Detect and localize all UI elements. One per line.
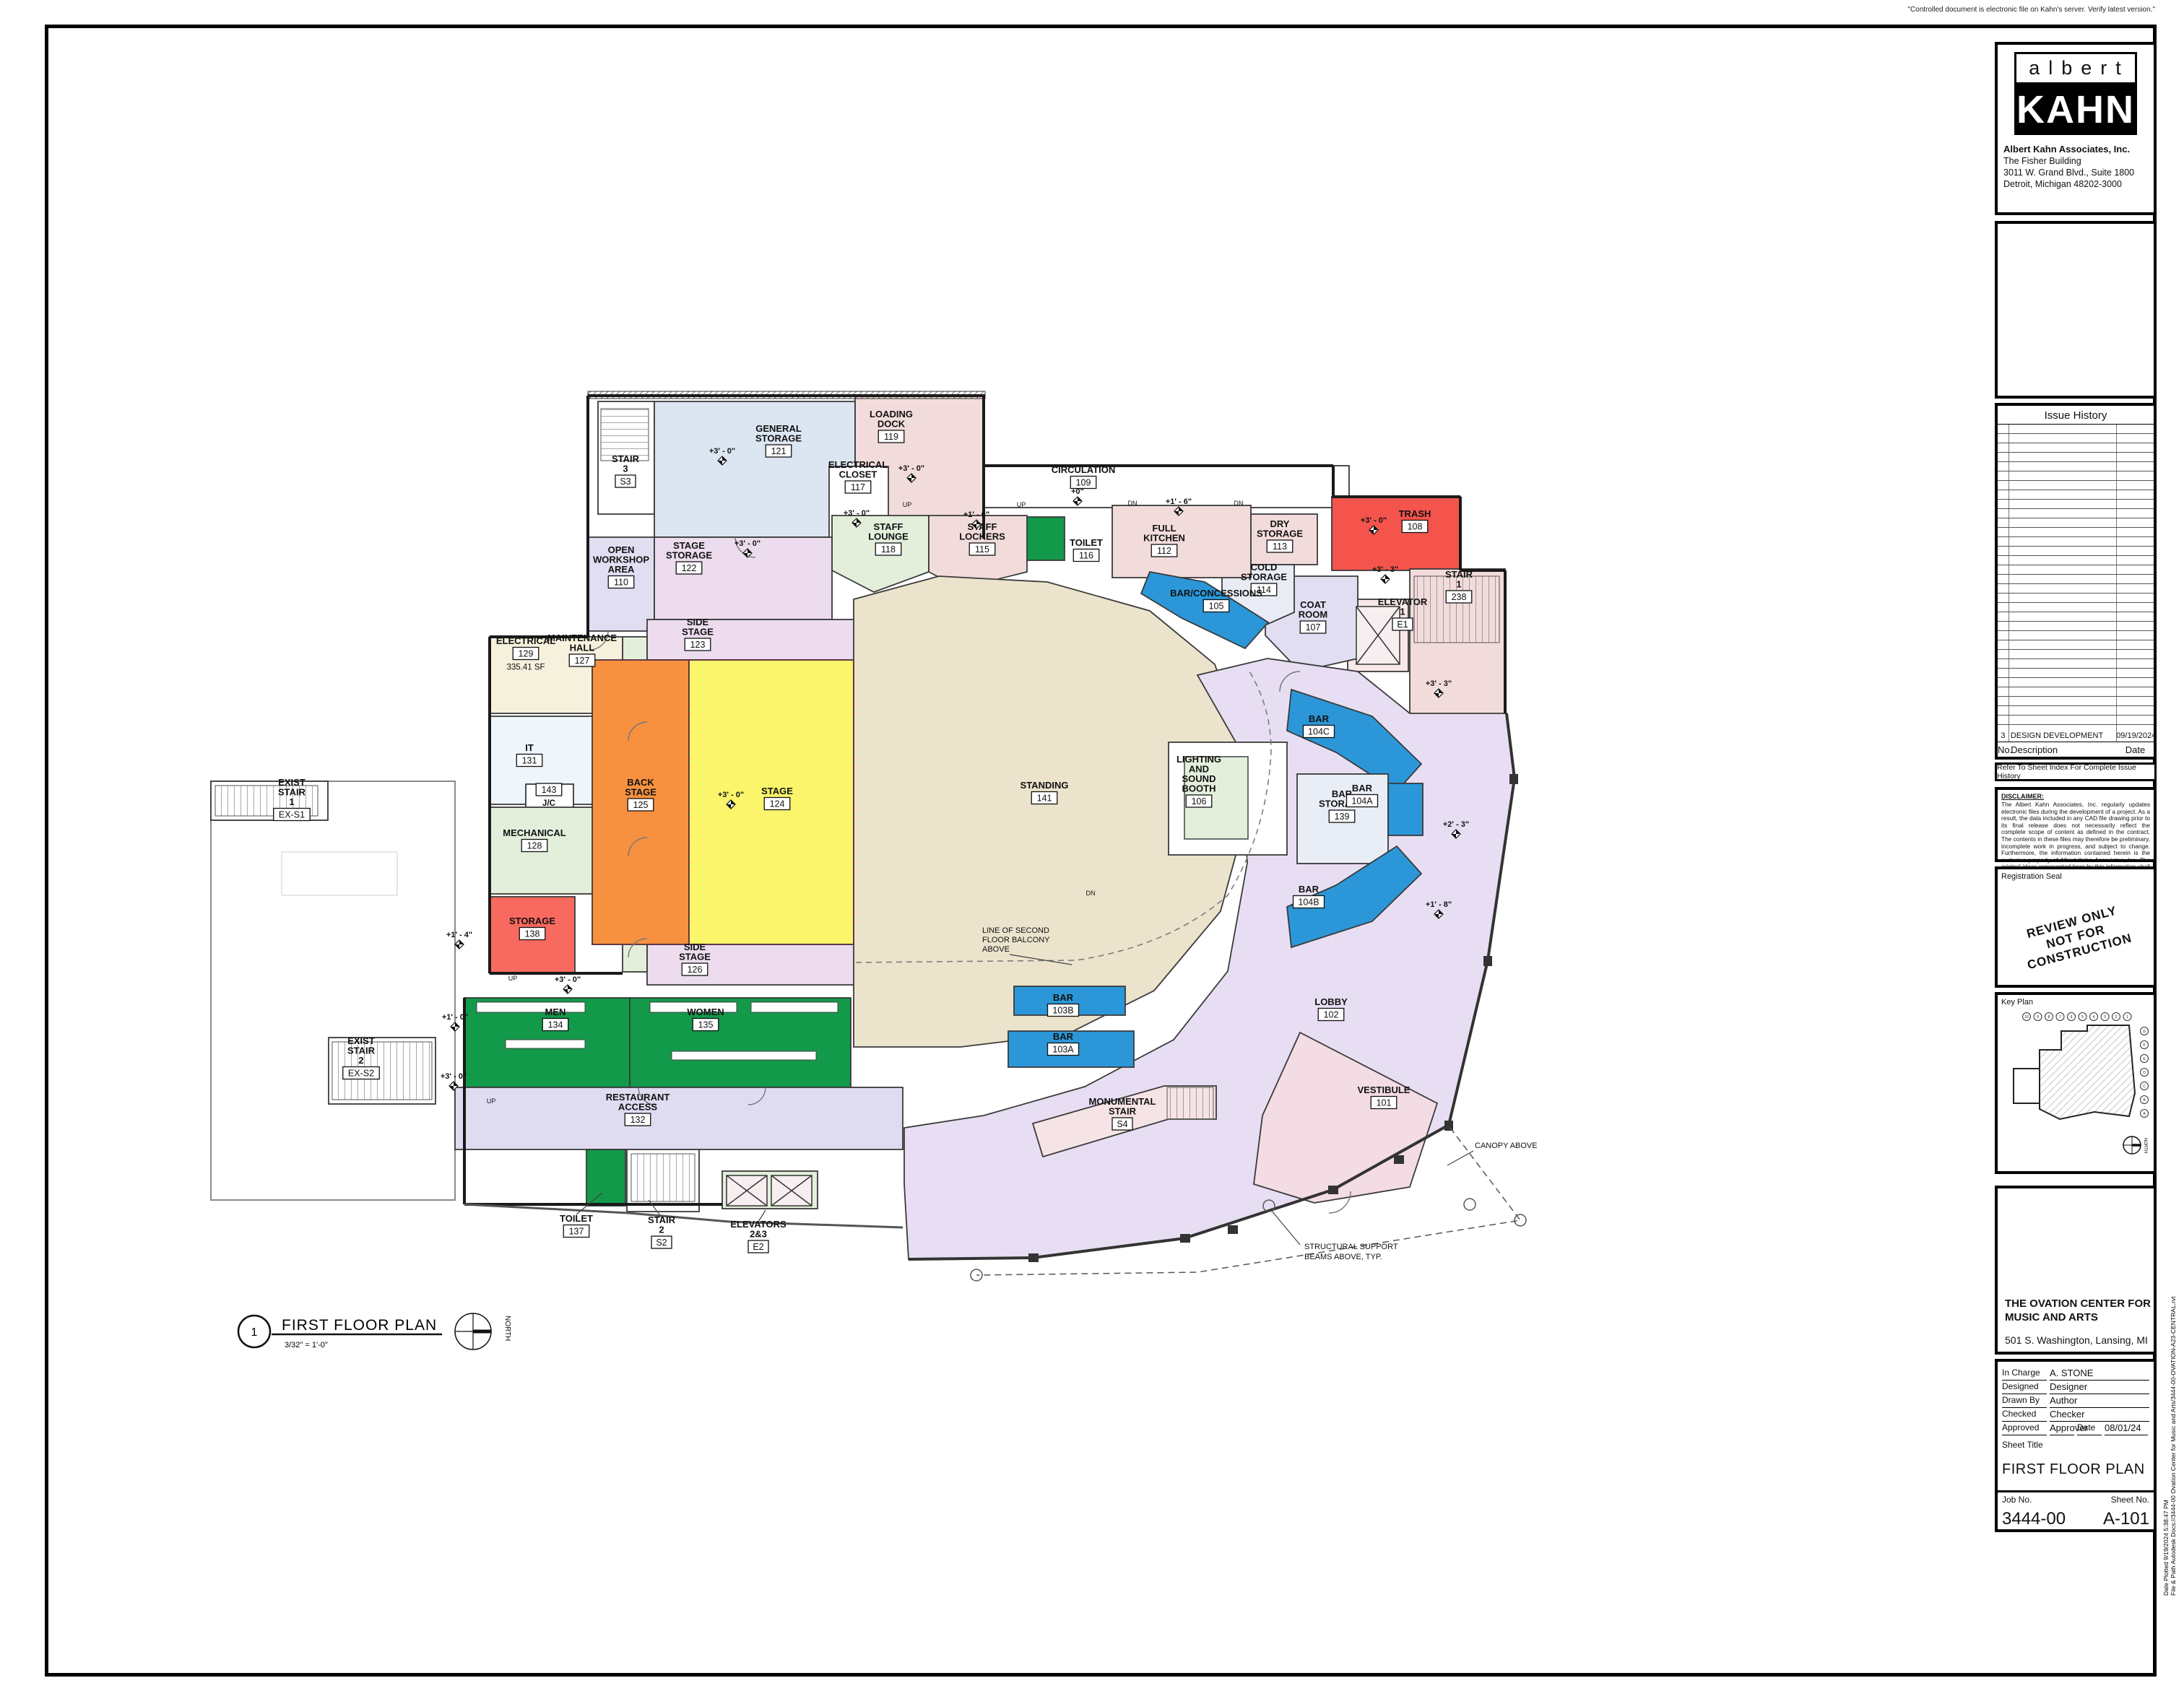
svg-text:STORAGE: STORAGE (509, 916, 555, 926)
svg-text:143: 143 (542, 785, 557, 795)
svg-text:BAR: BAR (1309, 713, 1330, 724)
issue-history-note: Refer To Sheet Index For Complete Issue … (1995, 762, 2157, 781)
svg-text:STAGE: STAGE (625, 787, 656, 798)
svg-text:4: 4 (2093, 1015, 2095, 1020)
issue-history-empty-row (1998, 631, 2154, 640)
sheet-title: FIRST FLOOR PLAN (2002, 1461, 2145, 1478)
svg-text:132: 132 (630, 1115, 646, 1125)
project-box: THE OVATION CENTER FOR MUSIC AND ARTS 50… (1995, 1186, 2157, 1355)
plan-annotation: LINE OF SECOND (982, 926, 1049, 935)
issue-history-footer: No. Description Date (1998, 742, 2154, 757)
svg-text:7: 7 (2059, 1015, 2061, 1020)
svg-text:112: 112 (1157, 546, 1171, 556)
room-126 (647, 944, 858, 985)
svg-text:108: 108 (1408, 522, 1423, 532)
issue-history-empty-row (1998, 443, 2154, 453)
svg-text:+3' - 0": +3' - 0" (898, 464, 924, 473)
room-label-E2: ELEVATORS2&3E2 (730, 1219, 786, 1253)
svg-text:BAR: BAR (1053, 1031, 1074, 1042)
svg-text:MEN: MEN (545, 1007, 566, 1017)
svg-text:LOUNGE: LOUNGE (868, 531, 909, 542)
issue-history-empty-row (1998, 669, 2154, 678)
svg-text:BOOTH: BOOTH (1182, 783, 1216, 794)
svg-text:KITCHEN: KITCHEN (1143, 533, 1185, 544)
room-label-137: TOILET137 (560, 1213, 593, 1238)
issue-history-empty-row (1998, 434, 2154, 443)
svg-text:EX-S2: EX-S2 (348, 1069, 374, 1079)
svg-text:110: 110 (614, 578, 628, 588)
svg-text:BAR: BAR (1352, 783, 1373, 794)
svg-text:3: 3 (2104, 1015, 2106, 1020)
issue-history-empty-row (1998, 697, 2154, 706)
svg-text:124: 124 (770, 799, 785, 809)
svg-text:STAGE: STAGE (682, 627, 714, 638)
room-label-134: MEN134 (542, 1007, 568, 1031)
plan-annotation: DN (1234, 500, 1244, 507)
room-137 (586, 1149, 625, 1206)
meta-approved: ApprovedApprover Date08/01/24 (2002, 1422, 2149, 1436)
svg-text:1: 1 (2126, 1015, 2128, 1020)
svg-text:BAR: BAR (1053, 992, 1074, 1003)
key-plan-north-icon (2123, 1136, 2141, 1154)
drawing-sheet: "Controlled document is electronic file … (0, 0, 2184, 1704)
svg-text:135: 135 (698, 1020, 714, 1030)
leader-line (1447, 1151, 1473, 1165)
svg-text:138: 138 (525, 929, 540, 939)
svg-text:2: 2 (358, 1055, 363, 1066)
room-label-135: WOMEN135 (687, 1007, 724, 1031)
svg-text:ROOM: ROOM (1299, 609, 1327, 620)
sheet-number-label: Sheet No. (2111, 1495, 2149, 1505)
svg-text:117: 117 (851, 482, 865, 492)
issue-history-empty-row (1998, 500, 2154, 509)
svg-text:BAR/CONCESSIONS: BAR/CONCESSIONS (1170, 588, 1262, 599)
issue-history-empty-row (1998, 547, 2154, 556)
room-116 (1024, 517, 1065, 560)
svg-text:+3' - 0": +3' - 0" (709, 447, 735, 456)
svg-text:A: A (2143, 1112, 2146, 1116)
svg-text:3: 3 (623, 464, 628, 474)
meta-drawn-by: Drawn ByAuthor (2002, 1395, 2149, 1409)
job-number-label: Job No. (2002, 1495, 2032, 1505)
svg-text:+1' - 8": +1' - 8" (1426, 900, 1452, 909)
edge-file-path: File & Path Autodesk Docs://3444-00 Ovat… (2170, 1296, 2177, 1596)
svg-text:+3' - 3": +3' - 3" (1372, 565, 1398, 574)
plan-annotation: UP (487, 1097, 496, 1105)
room-104A (1388, 783, 1423, 835)
key-plan-map: 10987654321 GFEDCBA NORTH (1998, 1007, 2152, 1165)
issue-history-empty-row (1998, 425, 2154, 434)
svg-text:E1: E1 (1397, 620, 1408, 630)
issue-history-empty-rows (1998, 424, 2154, 730)
room-label-108: TRASH108 (1399, 508, 1431, 533)
issue-history-empty-row (1998, 528, 2154, 537)
issue-history-empty-row (1998, 481, 2154, 490)
firm-address: Albert Kahn Associates, Inc. The Fisher … (2003, 144, 2154, 190)
svg-text:1: 1 (1456, 579, 1461, 590)
room-label-116: TOILET116 (1070, 537, 1103, 562)
plan-annotation: UP (903, 501, 912, 508)
issue-history-empty-row (1998, 706, 2154, 716)
svg-text:116: 116 (1079, 551, 1093, 561)
issue-history-empty-row (1998, 575, 2154, 584)
issue-history-empty-row (1998, 518, 2154, 528)
plan-annotation: BEAMS ABOVE, TYP. (1304, 1253, 1382, 1261)
meta-designed: DesignedDesigner (2002, 1381, 2149, 1395)
issue-history-empty-row (1998, 603, 2154, 612)
svg-text:LOCKERS: LOCKERS (959, 531, 1005, 542)
edge-date-plotted: Date Plotted 9/19/2024 5:38:47 PM (2162, 1500, 2170, 1596)
svg-text:121: 121 (771, 446, 786, 456)
svg-text:C: C (2143, 1084, 2146, 1089)
svg-text:EX-S1: EX-S1 (279, 810, 305, 820)
svg-text:+3' - 0": +3' - 0" (555, 975, 581, 984)
logo-albert-text: albert (2014, 52, 2137, 84)
svg-text:+1' - 6": +1' - 6" (1166, 497, 1192, 506)
svg-text:STORAGE: STORAGE (755, 433, 802, 444)
floor-plan: 1 FIRST FLOOR PLAN 3/32" = 1'-0" NORTH D… (0, 0, 2184, 1704)
kahn-logo: albert KAHN (2014, 52, 2137, 135)
plan-annotation: UP (1017, 501, 1026, 508)
svg-text:102: 102 (1324, 1010, 1339, 1020)
issue-history-empty-row (1998, 453, 2154, 462)
issue-history-empty-row (1998, 471, 2154, 481)
svg-text:B: B (2143, 1098, 2146, 1103)
svg-text:5: 5 (2081, 1015, 2084, 1020)
svg-text:VESTIBULE: VESTIBULE (1358, 1084, 1410, 1095)
svg-text:TRASH: TRASH (1399, 508, 1431, 519)
svg-text:STAGE: STAGE (761, 786, 793, 796)
project-address: 501 S. Washington, Lansing, MI (2005, 1334, 2154, 1346)
meta-box: In ChargeA. STONE DesignedDesigner Drawn… (1995, 1359, 2157, 1532)
key-plan-box: Key Plan 10987654321 GFEDCBA NORTH (1995, 992, 2157, 1174)
svg-text:106: 106 (1192, 796, 1207, 807)
svg-text:IT: IT (525, 742, 534, 753)
svg-text:335.41 SF: 335.41 SF (506, 664, 545, 672)
logo-kahn-text: KAHN (2014, 84, 2137, 135)
svg-text:2&3: 2&3 (750, 1229, 767, 1240)
issue-history-title: Issue History (1998, 406, 2154, 424)
sheet-number: A-101 (2103, 1509, 2149, 1529)
room-108 (1332, 497, 1460, 570)
viewport-number: 1 (251, 1326, 258, 1339)
svg-text:107: 107 (1306, 622, 1321, 633)
issue-history-row: 3 DESIGN DEVELOPMENT 09/19/2024 (1998, 730, 2154, 742)
svg-text:J/C: J/C (542, 799, 555, 808)
svg-text:STANDING: STANDING (1020, 780, 1069, 791)
titleblock-logo-box: albert KAHN Albert Kahn Associates, Inc.… (1995, 42, 2157, 215)
svg-text:129: 129 (519, 649, 534, 659)
plan-annotation: DN (1086, 890, 1096, 897)
svg-text:134: 134 (548, 1020, 563, 1030)
svg-text:+1' - 4": +1' - 4" (446, 931, 472, 939)
svg-text:+3' - 0": +3' - 0" (718, 791, 744, 799)
room-121 (654, 401, 855, 537)
svg-text:139: 139 (1335, 812, 1350, 822)
issue-history-empty-row (1998, 622, 2154, 631)
plan-annotation: CANOPY ABOVE (1475, 1142, 1538, 1150)
svg-text:131: 131 (522, 756, 537, 766)
issue-history-empty-row (1998, 687, 2154, 697)
svg-text:+3' - 3": +3' - 3" (1426, 679, 1452, 688)
issue-history-empty-row (1998, 490, 2154, 500)
svg-text:STAGE: STAGE (679, 952, 711, 962)
svg-text:10: 10 (2024, 1015, 2029, 1020)
registration-seal-box: Registration Seal REVIEW ONLY NOT FOR CO… (1995, 866, 2157, 988)
sheet-title-label: Sheet Title (2002, 1440, 2043, 1450)
svg-text:ELECTRICAL: ELECTRICAL (496, 635, 555, 646)
viewport-title: FIRST FLOOR PLAN (282, 1317, 437, 1334)
svg-text:AREA: AREA (608, 564, 635, 575)
plan-annotation: STRUCTURAL SUPPORT (1304, 1243, 1398, 1251)
plan-annotation: FLOOR BALCONY (982, 936, 1050, 944)
svg-text:STORAGE: STORAGE (1257, 529, 1303, 539)
svg-text:101: 101 (1377, 1098, 1392, 1108)
issue-history-empty-row (1998, 509, 2154, 518)
svg-text:NORTH: NORTH (2143, 1138, 2147, 1153)
svg-text:LOBBY: LOBBY (1314, 996, 1348, 1007)
elevation-marker: +3' - 3" (1372, 565, 1398, 583)
issue-history-box: Issue History 3 DESIGN DEVELOPMENT 09/19… (1995, 403, 2157, 760)
svg-text:125: 125 (633, 800, 649, 810)
svg-text:127: 127 (575, 656, 590, 666)
svg-text:+3' - 0": +3' - 0" (734, 539, 760, 548)
svg-text:STORAGE: STORAGE (666, 550, 712, 561)
svg-text:105: 105 (1209, 601, 1224, 612)
existing-building (211, 781, 455, 1200)
svg-text:115: 115 (975, 544, 989, 555)
svg-text:CIRCULATION: CIRCULATION (1052, 464, 1116, 475)
meta-divider (1998, 1490, 2154, 1492)
room-label-S2: STAIR2S2 (648, 1214, 676, 1248)
svg-text:8: 8 (2048, 1015, 2050, 1020)
svg-text:+3' - 0": +3' - 0" (844, 509, 870, 518)
project-name: THE OVATION CENTER FOR MUSIC AND ARTS (2005, 1297, 2154, 1324)
svg-text:D: D (2143, 1071, 2146, 1075)
issue-history-empty-row (1998, 725, 2154, 730)
room-label-107: COATROOM107 (1299, 599, 1327, 633)
issue-history-empty-row (1998, 716, 2154, 725)
meta-checked: CheckedChecker (2002, 1409, 2149, 1422)
svg-text:123: 123 (690, 640, 706, 650)
svg-text:+3' - 0": +3' - 0" (1361, 516, 1387, 525)
svg-text:122: 122 (682, 563, 697, 573)
svg-text:+1' - 0": +1' - 0" (442, 1013, 468, 1022)
svg-text:S4: S4 (1117, 1119, 1127, 1129)
svg-text:238: 238 (1452, 592, 1467, 602)
svg-text:1: 1 (289, 796, 294, 807)
svg-text:103B: 103B (1052, 1006, 1073, 1016)
issue-history-empty-row (1998, 565, 2154, 575)
svg-text:104A: 104A (1351, 796, 1373, 807)
svg-text:WOMEN: WOMEN (687, 1007, 724, 1017)
issue-history-empty-row (1998, 556, 2154, 565)
svg-text:137: 137 (569, 1227, 584, 1237)
svg-text:9: 9 (2037, 1015, 2039, 1020)
svg-text:ACCESS: ACCESS (618, 1102, 658, 1113)
svg-text:E: E (2143, 1057, 2146, 1061)
north-arrow-icon (455, 1313, 491, 1349)
svg-text:+2' - 3": +2' - 3" (1443, 820, 1469, 829)
plan-annotation: UP (508, 975, 518, 982)
issue-history-empty-row (1998, 650, 2154, 659)
svg-text:2: 2 (2115, 1015, 2118, 1020)
issue-history-empty-row (1998, 640, 2154, 650)
job-number: 3444-00 (2002, 1509, 2066, 1529)
svg-text:S3: S3 (620, 477, 630, 487)
titleblock-empty-box (1995, 221, 2157, 399)
issue-history-empty-row (1998, 678, 2154, 687)
svg-text:1: 1 (1400, 607, 1405, 617)
svg-text:103A: 103A (1052, 1045, 1074, 1055)
leader-line (1271, 1210, 1300, 1245)
issue-history-empty-row (1998, 659, 2154, 669)
room-132 (455, 1087, 903, 1149)
issue-history-empty-row (1998, 612, 2154, 622)
svg-text:TOILET: TOILET (560, 1213, 593, 1224)
svg-text:109: 109 (1076, 478, 1091, 488)
issue-history-empty-row (1998, 584, 2154, 594)
svg-text:+0": +0" (1071, 487, 1084, 496)
svg-text:126: 126 (688, 965, 703, 975)
issue-history-empty-row (1998, 462, 2154, 471)
svg-text:TOILET: TOILET (1070, 537, 1103, 548)
svg-text:F: F (2143, 1043, 2145, 1048)
north-label: NORTH (503, 1316, 511, 1341)
room-label-125: BACKSTAGE125 (625, 777, 656, 811)
plan-annotation: ABOVE (982, 945, 1010, 954)
svg-text:DOCK: DOCK (877, 419, 906, 430)
svg-text:119: 119 (884, 432, 898, 442)
svg-text:+1' - 6": +1' - 6" (963, 510, 989, 519)
svg-text:118: 118 (881, 544, 896, 555)
svg-text:+3' - 0": +3' - 0" (441, 1072, 467, 1081)
review-only-stamp: REVIEW ONLY NOT FOR CONSTRUCTION (1995, 895, 2157, 979)
room-123 (647, 620, 858, 660)
svg-text:104B: 104B (1298, 897, 1319, 908)
elevation-marker: +3' - 0" (555, 975, 581, 994)
svg-text:E2: E2 (753, 1242, 763, 1252)
svg-text:2: 2 (659, 1225, 664, 1235)
issue-history-empty-row (1998, 594, 2154, 603)
svg-text:128: 128 (527, 841, 542, 851)
svg-text:104C: 104C (1308, 727, 1330, 737)
viewport-scale: 3/32" = 1'-0" (285, 1341, 328, 1349)
svg-text:G: G (2143, 1030, 2146, 1034)
plan-annotation: DN (1128, 500, 1137, 507)
room-label-102: LOBBY102 (1314, 996, 1348, 1021)
svg-text:STAIR: STAIR (1109, 1106, 1137, 1117)
disclaimer-box: DISCLAIMER: The Albert Kahn Associates, … (1995, 787, 2157, 862)
svg-text:141: 141 (1037, 794, 1052, 804)
svg-text:STORAGE: STORAGE (1241, 572, 1287, 583)
room-label-124: STAGE124 (761, 786, 793, 810)
svg-text:BAR: BAR (1299, 884, 1319, 895)
svg-text:MECHANICAL: MECHANICAL (503, 827, 565, 838)
svg-text:113: 113 (1273, 542, 1287, 552)
svg-text:6: 6 (2071, 1015, 2073, 1020)
svg-text:S2: S2 (656, 1238, 667, 1248)
svg-text:CLOSET: CLOSET (839, 469, 877, 480)
meta-in-charge: In ChargeA. STONE (2002, 1368, 2149, 1381)
svg-text:HALL: HALL (570, 643, 595, 653)
issue-history-empty-row (1998, 537, 2154, 547)
